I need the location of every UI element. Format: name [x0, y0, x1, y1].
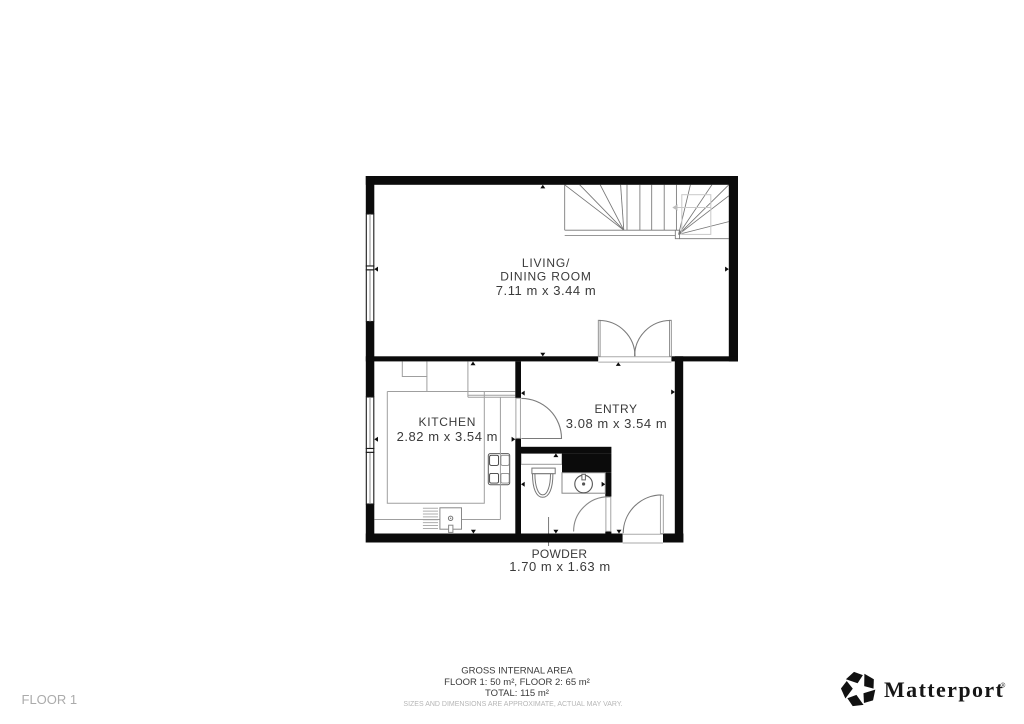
svg-text:KITCHEN: KITCHEN [419, 415, 477, 429]
svg-text:2.82 m x 3.54 m: 2.82 m x 3.54 m [397, 429, 498, 444]
svg-text:ENTRY: ENTRY [595, 402, 638, 416]
svg-text:SIZES AND DIMENSIONS ARE APPRO: SIZES AND DIMENSIONS ARE APPROXIMATE, AC… [403, 701, 622, 708]
svg-text:DINING ROOM: DINING ROOM [500, 270, 591, 284]
svg-text:1.70 m x 1.63 m: 1.70 m x 1.63 m [509, 559, 610, 574]
svg-text:GROSS INTERNAL AREA: GROSS INTERNAL AREA [461, 666, 573, 677]
svg-text:3.08 m x 3.54 m: 3.08 m x 3.54 m [566, 416, 667, 431]
svg-text:TOTAL: 115 m²: TOTAL: 115 m² [485, 688, 549, 699]
svg-text:FLOOR 1: 50 m², FLOOR 2: 65 m²: FLOOR 1: 50 m², FLOOR 2: 65 m² [444, 677, 590, 688]
svg-text:7.11 m x 3.44 m: 7.11 m x 3.44 m [496, 283, 597, 298]
svg-text:LIVING/: LIVING/ [522, 256, 570, 270]
svg-text:®: ® [1001, 682, 1006, 690]
svg-text:Matterport: Matterport [884, 677, 1004, 702]
svg-text:FLOOR 1: FLOOR 1 [22, 692, 78, 707]
